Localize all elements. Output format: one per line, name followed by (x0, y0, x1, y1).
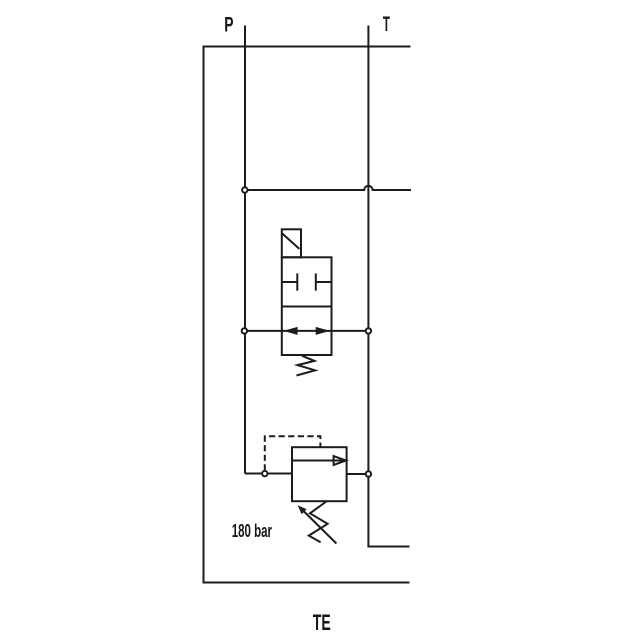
svg-text:180 bar: 180 bar (232, 521, 272, 541)
svg-text:TE: TE (313, 610, 331, 635)
svg-text:P: P (224, 12, 233, 36)
svg-text:T: T (383, 13, 390, 37)
